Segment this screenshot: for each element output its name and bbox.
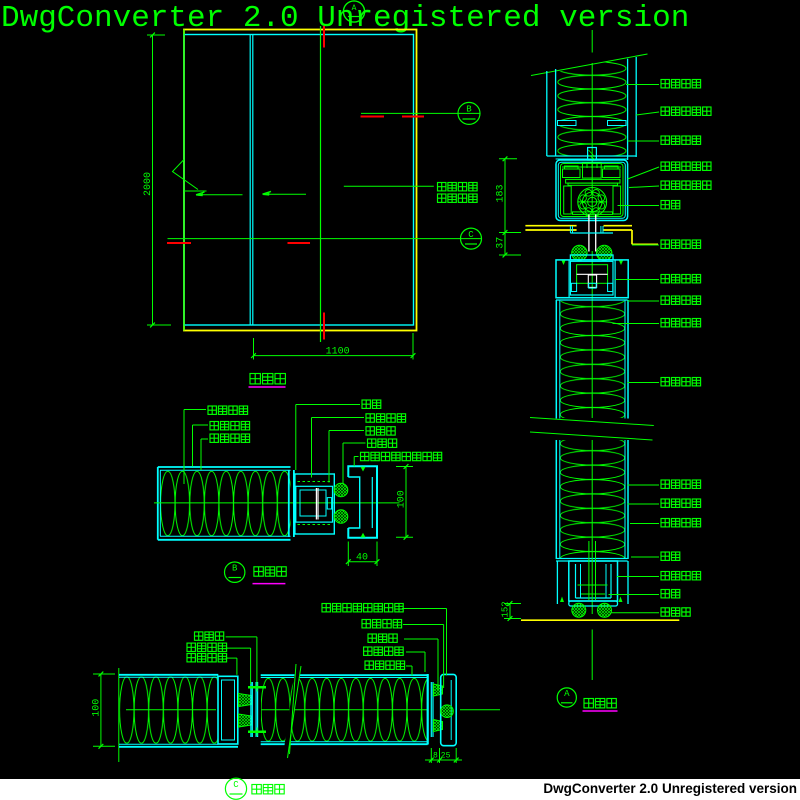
svg-text:183: 183 [496,184,507,202]
svg-text:C: C [233,780,239,790]
svg-text:152: 152 [501,601,511,617]
svg-text:25: 25 [441,752,451,761]
svg-text:B: B [232,564,238,574]
svg-text:B: B [466,105,472,115]
svg-text:DwgConverter 2.0 Unregistered: DwgConverter 2.0 Unregistered version [543,781,797,796]
svg-text:C: C [468,230,474,240]
svg-text:A: A [564,689,570,699]
svg-text:8: 8 [433,752,438,761]
svg-text:37: 37 [496,237,507,249]
svg-text:A: A [352,4,357,13]
svg-text:100: 100 [397,490,408,508]
svg-text:40: 40 [356,553,368,564]
svg-text:1100: 1100 [326,347,350,358]
svg-text:2000: 2000 [143,172,154,196]
svg-text:100: 100 [92,699,103,717]
